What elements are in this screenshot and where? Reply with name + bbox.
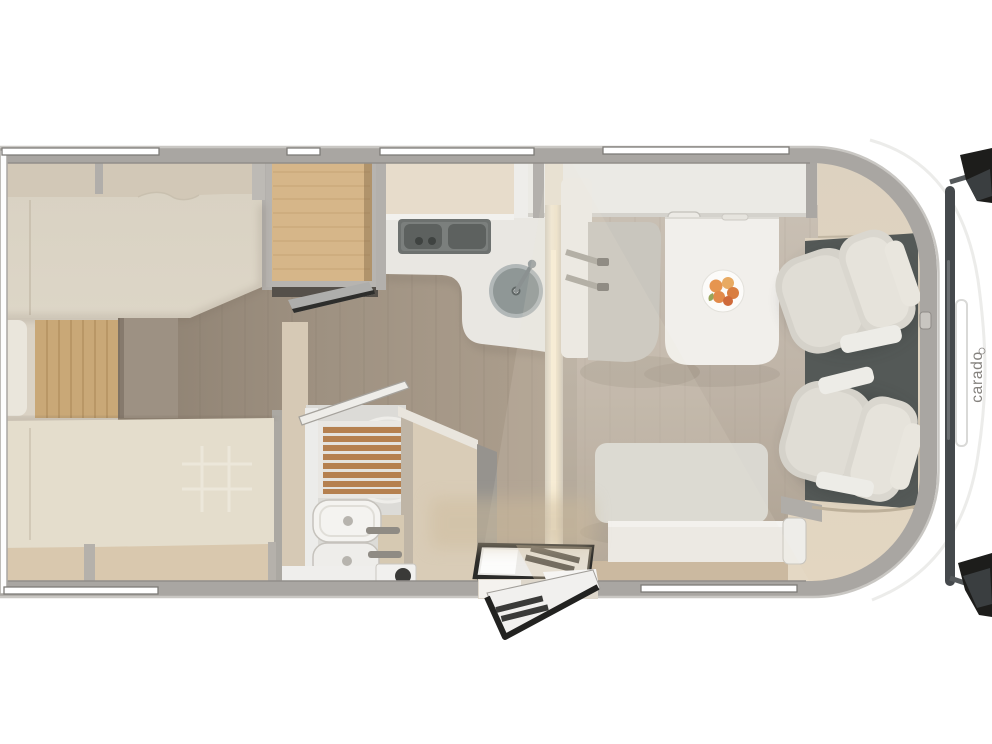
- svg-text:carado: carado: [969, 351, 986, 403]
